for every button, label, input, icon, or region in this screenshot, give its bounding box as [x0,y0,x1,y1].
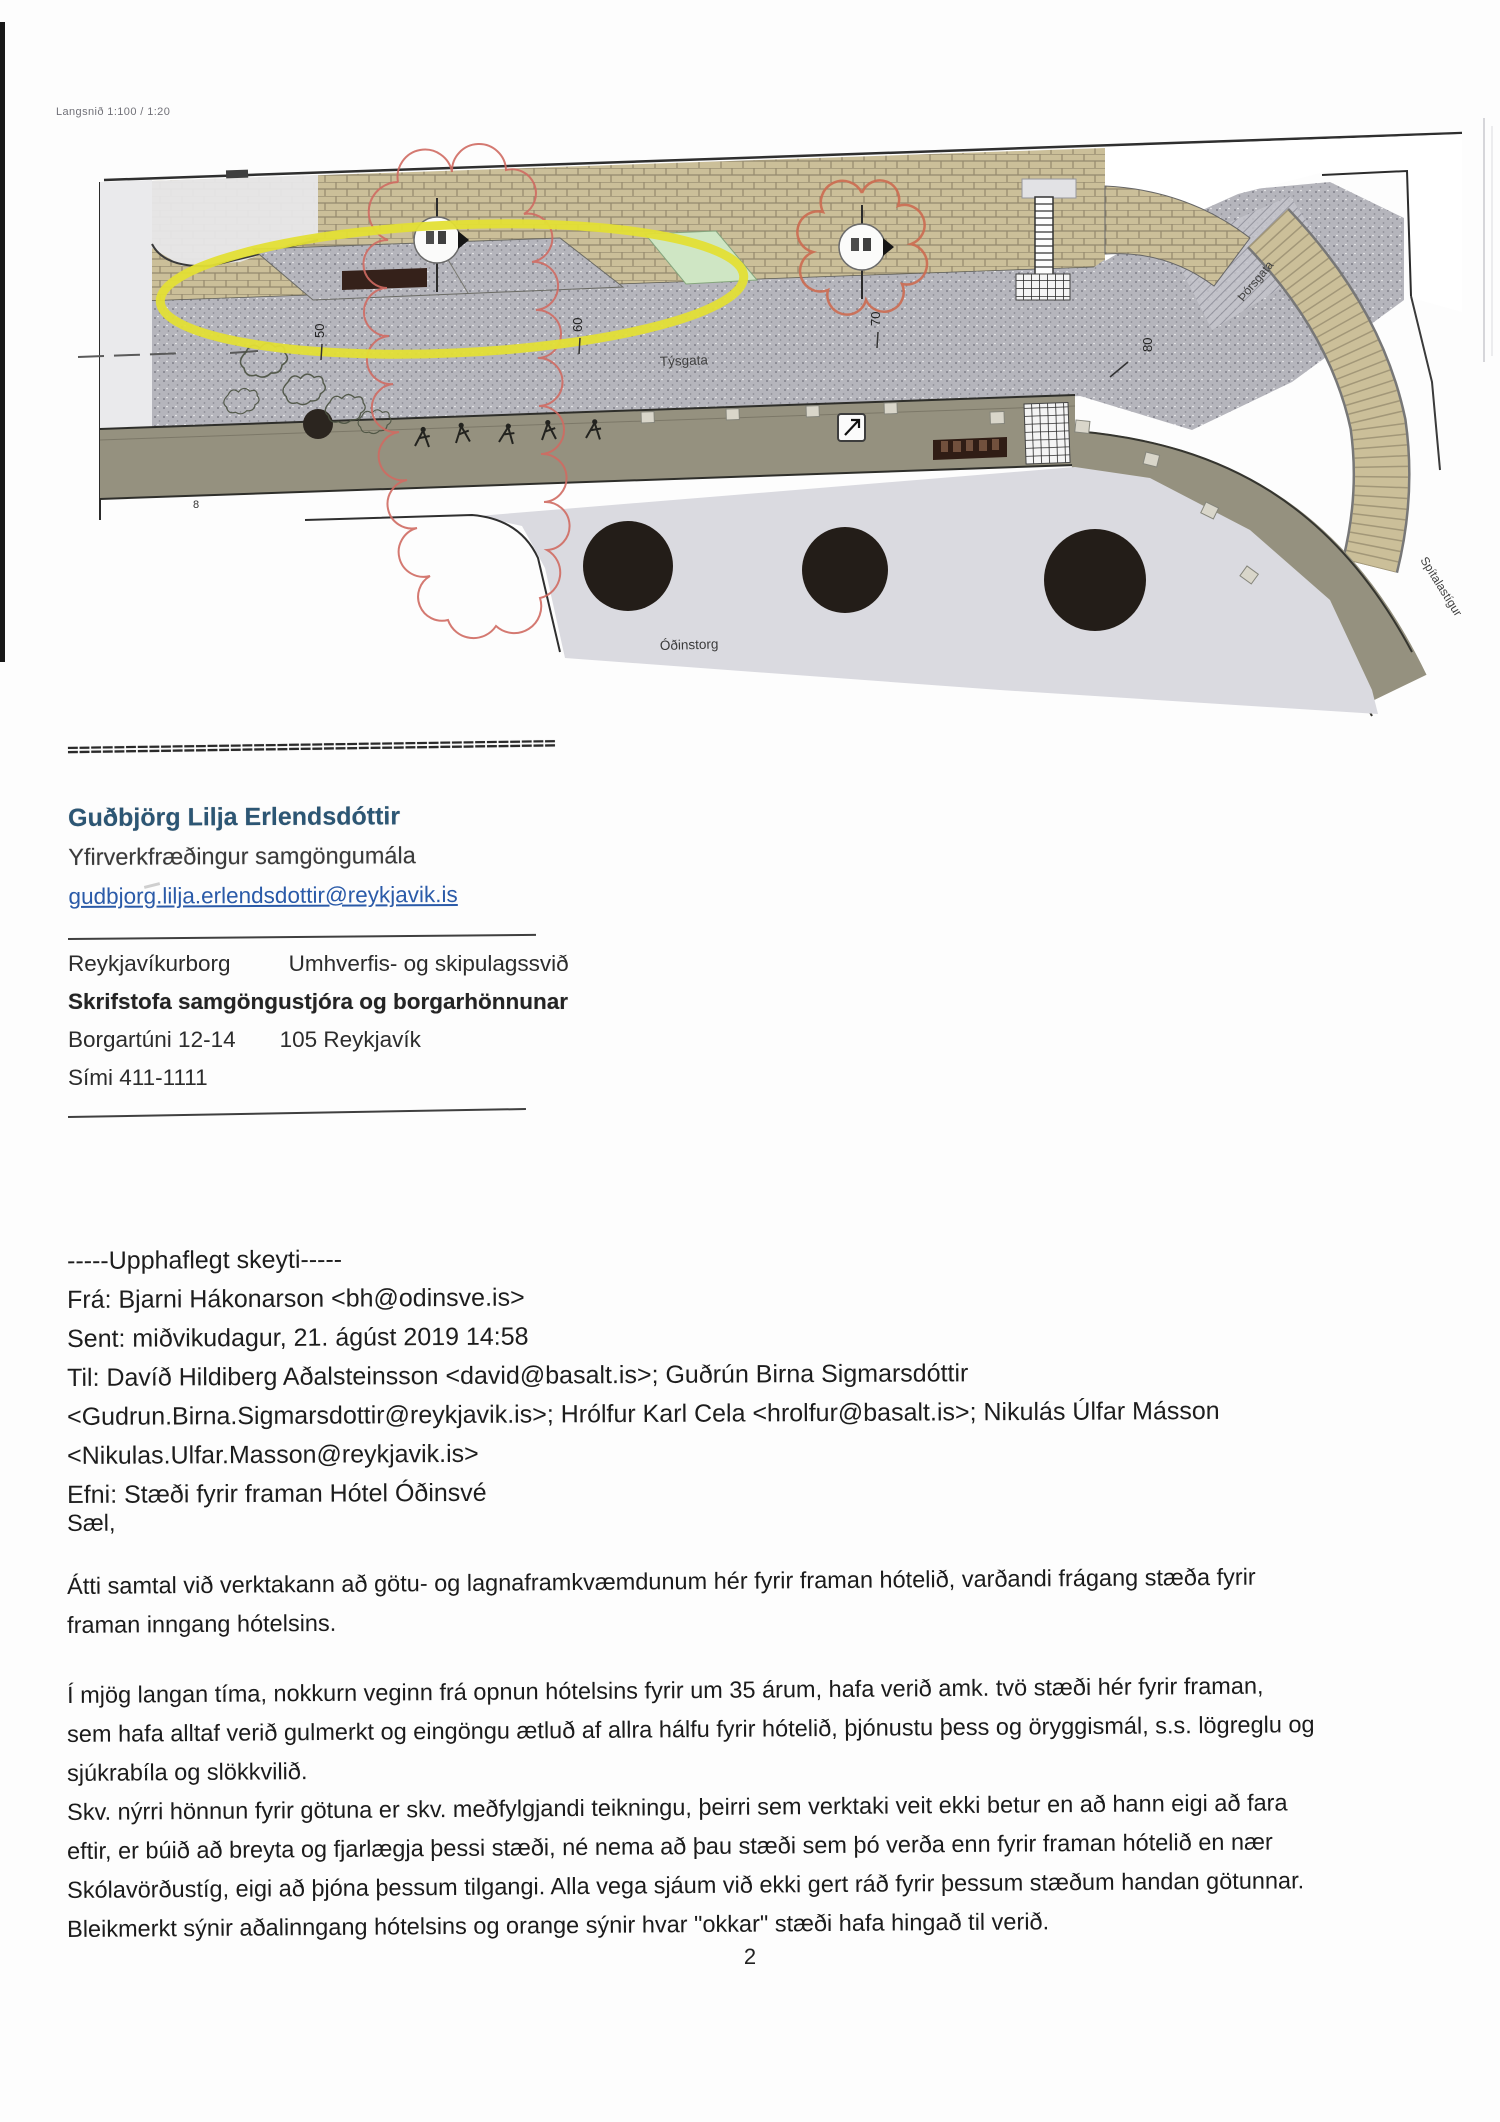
body-paragraph-line: sjúkrabíla og slökkvilið. [67,1758,308,1787]
station-label-small: 8 [193,499,199,511]
org-divider-top [68,934,536,940]
station-label: 70 [868,312,883,326]
station-label: 80 [1140,338,1155,352]
signature-email-link[interactable]: gudbjorg.lilja.erlendsdottir@reykjavik.i… [68,875,457,916]
org-office: Skrifstofa samgöngustjóra og borgarhönnu… [68,989,568,1015]
parking-symbol-icon [838,414,865,441]
body-greeting: Sæl, [67,1510,116,1537]
org-address: Borgartúni 12-14 [68,1027,236,1053]
org-city-division-row: Reykjavíkurborg Umhverfis- og skipulagss… [68,951,569,977]
street-label-odinstorg: Óðinstorg [660,636,719,653]
tree-symbol [303,409,333,439]
org-address-row: Borgartúni 12-14 105 Reykjavík [68,1027,421,1053]
station-label: 60 [570,318,585,332]
body-paragraph-line: Skólavörðustíg, eigi að þjóna þessum til… [67,1867,1304,1904]
scan-artifact-lines [1484,118,1492,362]
quote-to-line: <Nikulas.Ulfar.Masson@reykjavik.is> [67,1440,479,1471]
signature-name: Guðbjörg Lilja Erlendsdóttir [68,796,457,838]
quote-from: Frá: Bjarni Hákonarson <bh@odinsve.is> [67,1284,525,1315]
org-divider-bottom [68,1108,526,1118]
body-paragraph-line: Átti samtal við verktakann að götu- og l… [67,1564,1256,1600]
body-paragraph-line: Bleikmerkt sýnir aðalinngang hótelsins o… [67,1908,1049,1943]
org-postal: 105 Reykjavík [280,1027,421,1053]
page-number: 2 [700,1944,800,1970]
quote-divider: -----Upphaflegt skeyti----- [67,1246,342,1276]
quote-sent: Sent: miðvikudagur, 21. ágúst 2019 14:58 [67,1323,529,1354]
body-paragraph-line: framan inngang hótelsins. [67,1610,336,1639]
body-paragraph-line: Í mjög langan tíma, nokkurn veginn frá o… [67,1673,1264,1709]
signature-block: Guðbjörg Lilja Erlendsdóttir Yfirverkfræ… [68,796,458,916]
dark-shelter-marking [933,437,1007,460]
org-division: Umhverfis- og skipulagssvið [289,951,569,977]
signature-title: Yfirverkfræðingur samgöngumála [68,836,457,877]
org-city: Reykjavíkurborg [68,951,231,977]
org-phone: Sími 411-1111 [68,1065,208,1091]
body-paragraph-line: sem hafa alltaf verið gulmerkt og eingön… [67,1711,1315,1748]
station-label: 50 [312,324,327,338]
site-plan-drawing: 50 60 70 80 8 Týsgata Óðinstorg Þórsgata… [0,0,1500,720]
quote-subject: Efni: Stæði fyrir framan Hótel Óðinsvé [67,1479,487,1510]
body-paragraph-line: eftir, er búið að breyta og fjarlægja þe… [67,1829,1273,1865]
street-label-tysgata: Týsgata [660,352,709,369]
body-paragraph-line: Skv. nýrri hönnun fyrir götuna er skv. m… [67,1789,1288,1826]
quote-to-line: Til: Davíð Hildiberg Aðalsteinsson <davi… [67,1359,968,1393]
signature-separator: ========================================… [67,732,556,761]
street-label-spitalastigur: Spítalastígur [1417,554,1465,619]
quote-to-line: <Gudrun.Birna.Sigmarsdottir@reykjavik.is… [67,1397,1220,1432]
dark-parking-marking [342,268,427,290]
scanned-email-page: Langsnið 1:100 / 1:20 [0,0,1500,2122]
